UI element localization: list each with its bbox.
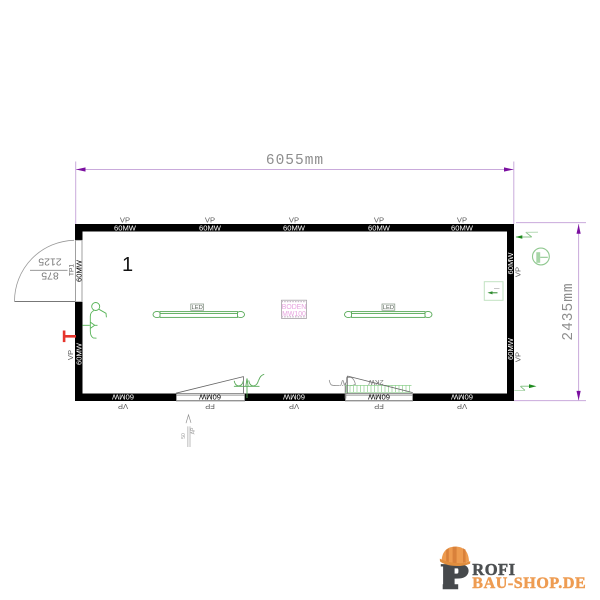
svg-text:1: 1	[122, 254, 133, 276]
svg-text:60MW: 60MW	[451, 224, 474, 233]
svg-text:60MW: 60MW	[74, 259, 83, 282]
svg-text:60MW: 60MW	[282, 393, 305, 402]
svg-text:LED: LED	[383, 305, 394, 311]
svg-text:VP: VP	[289, 402, 299, 411]
svg-text:6055mm: 6055mm	[266, 153, 324, 169]
svg-text:2KW: 2KW	[368, 378, 384, 385]
svg-text:50: 50	[181, 433, 187, 439]
svg-text:LED: LED	[192, 305, 203, 311]
svg-text:60MW: 60MW	[367, 393, 390, 402]
svg-text:VP: VP	[118, 402, 128, 411]
svg-text:BAU-SHOP.DE: BAU-SHOP.DE	[472, 575, 586, 592]
svg-text:60MW: 60MW	[74, 342, 83, 365]
svg-text:VP: VP	[514, 267, 523, 277]
svg-text:FP: FP	[205, 402, 215, 411]
svg-text:2435mm: 2435mm	[561, 282, 577, 340]
svg-text:60MW: 60MW	[111, 393, 134, 402]
svg-text:VP: VP	[457, 402, 467, 411]
svg-text:TP1: TP1	[69, 264, 76, 276]
svg-text:VP: VP	[514, 352, 523, 362]
svg-text:875: 875	[41, 270, 59, 282]
svg-text:60MW: 60MW	[114, 224, 137, 233]
svg-text:2125: 2125	[38, 255, 62, 267]
svg-text:FP: FP	[374, 402, 384, 411]
svg-text:60MW: 60MW	[198, 393, 221, 402]
svg-text:MW100: MW100	[282, 311, 306, 318]
svg-text:60MW: 60MW	[199, 224, 222, 233]
svg-text:60MW: 60MW	[450, 393, 473, 402]
svg-text:60MW: 60MW	[283, 224, 306, 233]
svg-text:AP: AP	[191, 427, 197, 434]
svg-text:VP: VP	[66, 350, 75, 360]
svg-text:60MW: 60MW	[368, 224, 391, 233]
